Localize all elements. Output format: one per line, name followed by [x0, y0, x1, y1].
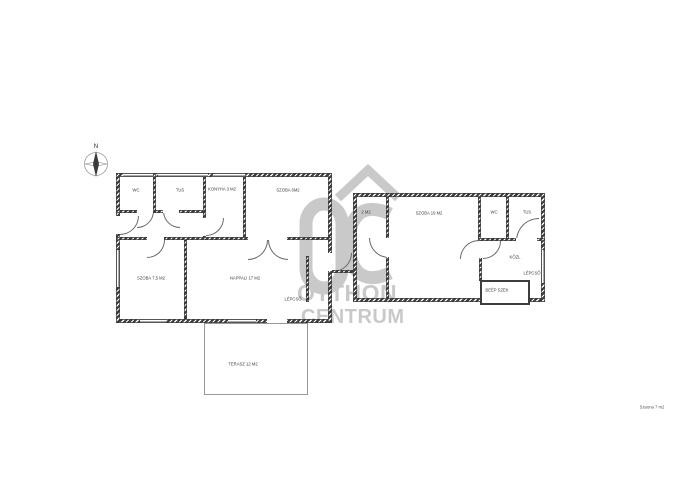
wall — [353, 193, 545, 197]
door-arc — [206, 218, 224, 236]
room-label-lepcso-right: LÉPCSŐ — [524, 271, 541, 276]
compass-north-label: N — [94, 143, 99, 150]
room-label-lepcso-left: LÉPCSŐ — [285, 297, 302, 302]
room-label-szoba75: SZOBA 7,5 M2 — [137, 276, 165, 281]
room-label-terasz: TERASZ 12 M2 — [228, 362, 257, 367]
door-opening — [137, 210, 153, 213]
door-opening — [267, 319, 287, 323]
wall — [243, 173, 246, 240]
door-opening — [516, 238, 537, 241]
compass-north-needle-icon — [93, 151, 99, 177]
wall — [116, 173, 120, 323]
watermark-line2: CENTRUM — [301, 306, 397, 329]
terrace-outline — [204, 323, 308, 395]
watermark-line1: OTTHON — [297, 280, 397, 307]
room-label-eloter: 2 M2 — [361, 210, 370, 215]
room-label-szoba6: SZOBA 6M2 — [276, 188, 299, 193]
door-opening — [203, 218, 206, 236]
room-label-szoba19: SZOBA 19 M2 — [416, 211, 443, 216]
room-label-wc-right: WC — [491, 210, 498, 215]
room-label-nappali: NAPPALI 17 M2 — [230, 276, 260, 281]
door-arc — [137, 211, 154, 228]
room-label-tus-right: TUS — [523, 210, 531, 215]
window — [213, 173, 245, 177]
wall — [116, 210, 205, 213]
wall — [306, 256, 309, 302]
door-opening — [163, 210, 179, 213]
area-footnote: Szauna 7 m2 — [640, 405, 665, 410]
window — [123, 173, 153, 177]
door-arc — [147, 240, 165, 258]
compass-rose: N — [78, 138, 114, 184]
room-label-tus-left: TUS — [176, 188, 184, 193]
wall — [541, 193, 545, 302]
door-arc — [248, 240, 268, 260]
wall — [353, 193, 357, 302]
door-opening — [147, 237, 164, 240]
door-opening — [328, 253, 332, 271]
door-arc — [268, 240, 288, 260]
room-label-konyha: KONYHA 3 M2 — [208, 187, 236, 192]
wall — [506, 197, 509, 240]
door-opening — [386, 238, 389, 257]
door-arc — [163, 211, 180, 228]
wall — [332, 270, 353, 273]
wall — [478, 197, 481, 240]
window — [158, 173, 208, 177]
door-arc — [460, 240, 479, 259]
door-arc — [483, 241, 501, 259]
window — [541, 250, 545, 283]
logo-letter-o — [306, 204, 342, 288]
wall — [153, 173, 156, 213]
wall — [184, 240, 187, 319]
window — [116, 250, 120, 287]
built-in-closet — [480, 280, 530, 305]
door-opening — [116, 216, 120, 234]
window — [228, 319, 256, 323]
floorplan-canvas: OTTHON CENTRUM N — [0, 0, 699, 500]
room-label-wc-left: WC — [133, 188, 140, 193]
room-label-kozl: KÖZL — [510, 255, 521, 260]
door-opening — [479, 241, 482, 258]
window — [140, 319, 166, 323]
wall — [328, 173, 332, 323]
door-opening — [248, 237, 287, 240]
room-label-beep-szek: BEÉP SZEK — [485, 288, 508, 293]
